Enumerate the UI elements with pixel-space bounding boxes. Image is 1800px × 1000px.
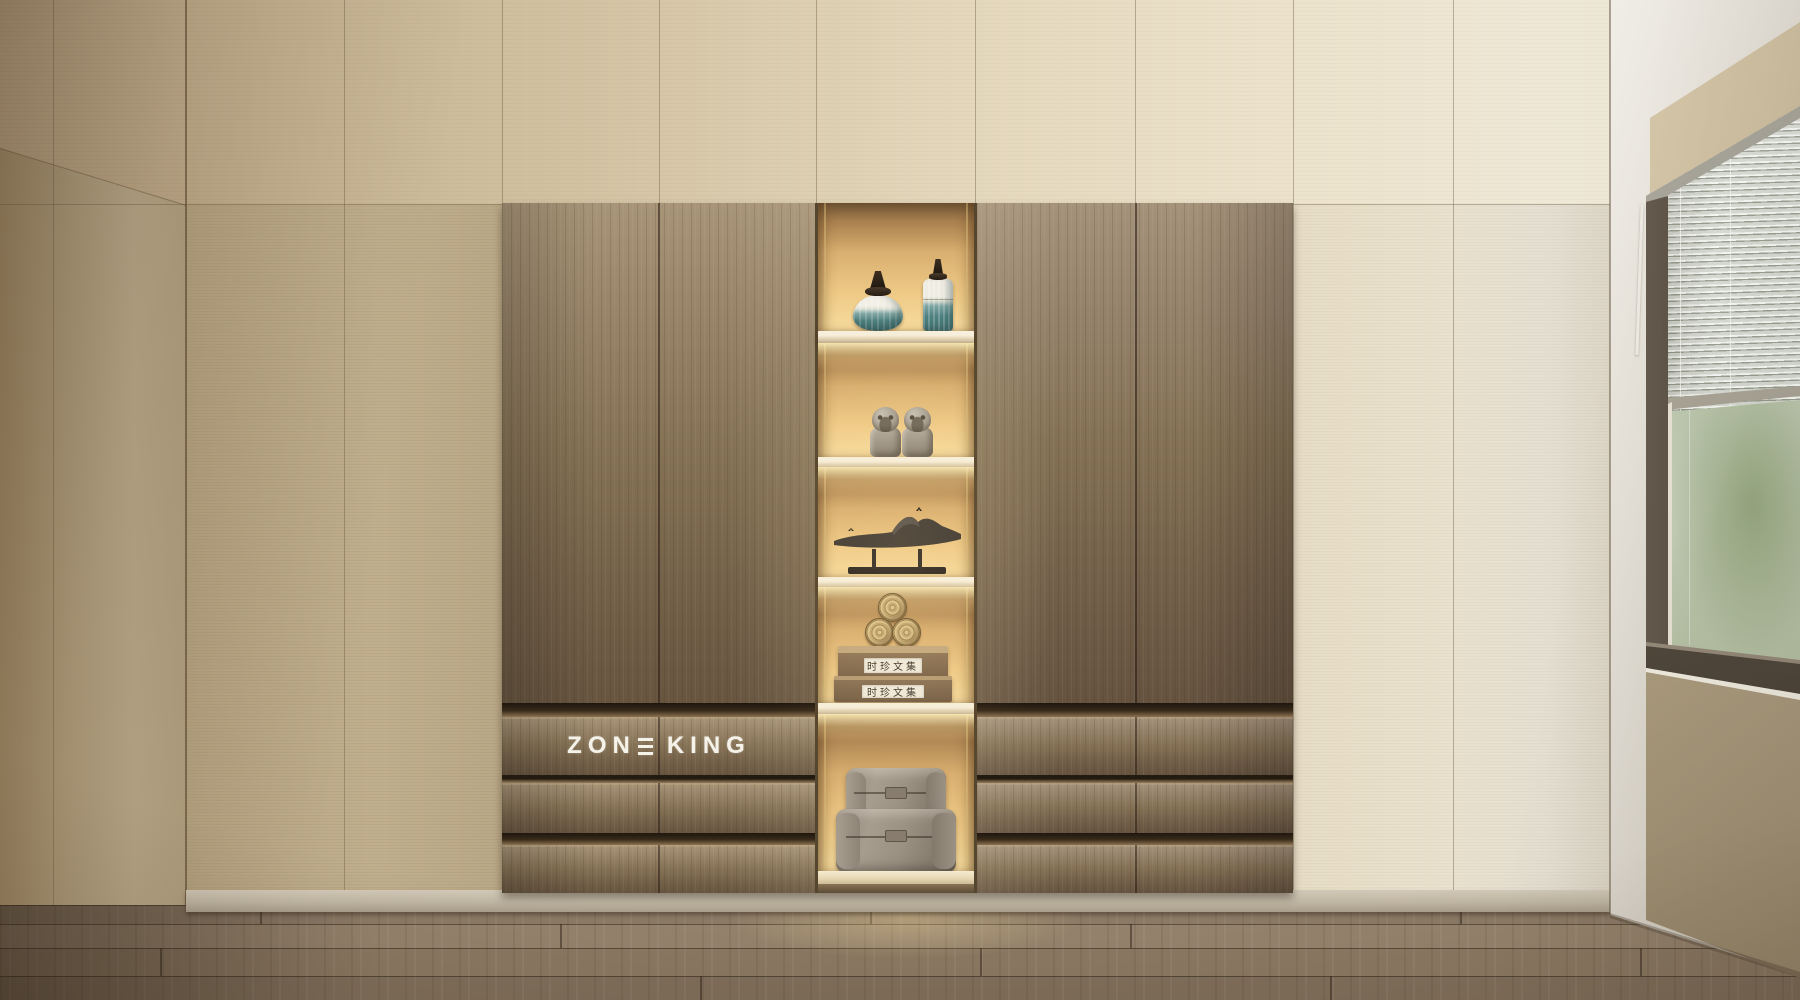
panel-seam	[502, 0, 503, 204]
panel-seam	[1453, 0, 1454, 890]
plank-joint	[1130, 924, 1132, 948]
figurine-head	[904, 407, 931, 432]
niche-base-lip	[818, 884, 974, 893]
chest-clasp	[885, 830, 907, 842]
niche-base-platform	[818, 871, 974, 884]
niche-compartment-chests	[818, 714, 974, 871]
bamboo-scroll	[892, 618, 921, 647]
drawer-gap	[1135, 845, 1137, 893]
baseboard	[186, 890, 1610, 912]
panel-seam	[1135, 0, 1136, 204]
drawer-gap	[658, 845, 660, 893]
niche-compartment-figurines	[818, 343, 974, 457]
niche-shelf	[818, 331, 974, 343]
vase-lid-cap	[865, 287, 891, 296]
guardian-lion-figurine	[902, 407, 933, 457]
display-niche: 时珍文集 时珍文集	[815, 203, 977, 893]
wardrobe-left-bank: ZONKING	[502, 203, 816, 893]
book-spine-label: 时珍文集	[864, 658, 922, 673]
drawer-row	[977, 845, 1293, 893]
vase-lid-cap	[929, 273, 947, 280]
drawer-row	[502, 845, 816, 893]
panel-seam	[344, 0, 345, 890]
wardrobe-right-bank	[977, 203, 1293, 893]
vase-lid	[933, 259, 943, 274]
cylinder-teal-vase	[923, 279, 953, 331]
drawer-gap	[658, 783, 660, 833]
brand-wordmark: ZONKING	[502, 724, 816, 768]
door-gap	[658, 203, 660, 703]
panel-seam	[1293, 0, 1294, 890]
plank-joint	[1330, 976, 1332, 1000]
chest-clasp	[885, 787, 907, 799]
floor-shadow	[0, 905, 500, 1000]
drawer-gap	[1135, 783, 1137, 833]
drawer-row	[502, 783, 816, 833]
panel-seam	[816, 0, 817, 204]
drawer-groove	[977, 833, 1293, 845]
right-wall-window-zone	[1610, 0, 1800, 1000]
wall-panels-right	[1293, 204, 1610, 894]
round-teal-vase	[853, 295, 903, 331]
panel-seam	[659, 0, 660, 204]
stylized-e-glyph	[638, 738, 653, 755]
floor-light-patch	[690, 900, 1120, 995]
panel-seam	[975, 0, 976, 204]
book: 时珍文集	[838, 646, 948, 677]
drawer-row	[977, 717, 1293, 775]
drawer-groove	[502, 703, 816, 717]
figurine-head	[872, 407, 899, 432]
niche-compartment-books: 时珍文集 时珍文集	[818, 587, 974, 703]
niche-compartment-vases	[818, 203, 974, 331]
brand-wordmark-left: ZON	[567, 732, 636, 760]
drawer-groove	[977, 703, 1293, 717]
drawer-row	[977, 783, 1293, 833]
drawer-groove	[502, 833, 816, 845]
wardrobe-cabinet: ZONKING	[502, 203, 1293, 893]
storage-chest-large	[836, 809, 956, 873]
panel-seam	[53, 0, 54, 985]
drawer-groove	[502, 775, 816, 783]
door-gap	[1135, 203, 1137, 703]
drawer-gap	[1135, 717, 1137, 775]
niche-compartment-sculpture	[818, 467, 974, 577]
interior-render: ZONKING	[0, 0, 1800, 1000]
book: 时珍文集	[834, 676, 952, 702]
wall-panels-top	[0, 0, 1800, 204]
guardian-lion-figurine	[870, 407, 901, 457]
drawer-groove	[977, 775, 1293, 783]
plank-joint	[560, 924, 562, 948]
brand-wordmark-right: KING	[667, 732, 751, 760]
right-wall-corner-seam	[1609, 0, 1611, 915]
mountain-sculpture	[830, 497, 964, 577]
bamboo-scroll	[865, 618, 894, 647]
wall-corner-seam	[185, 0, 187, 912]
book-spine-label: 时珍文集	[862, 685, 924, 698]
